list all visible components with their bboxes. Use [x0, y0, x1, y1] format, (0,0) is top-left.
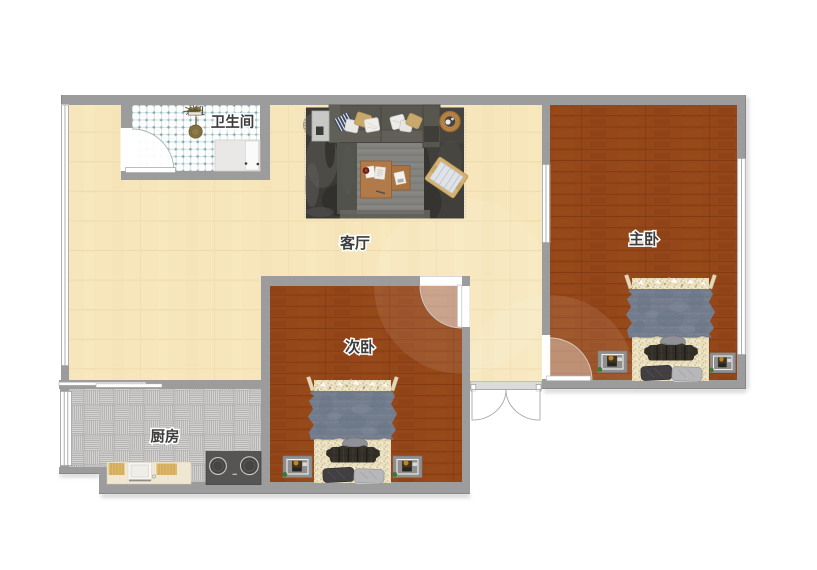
svg-text:卫生间: 卫生间 — [211, 113, 255, 131]
svg-text:厨房: 厨房 — [151, 428, 180, 446]
svg-text:客厅: 客厅 — [339, 234, 370, 252]
svg-text:次卧: 次卧 — [345, 338, 375, 356]
svg-text:主卧: 主卧 — [629, 230, 659, 248]
